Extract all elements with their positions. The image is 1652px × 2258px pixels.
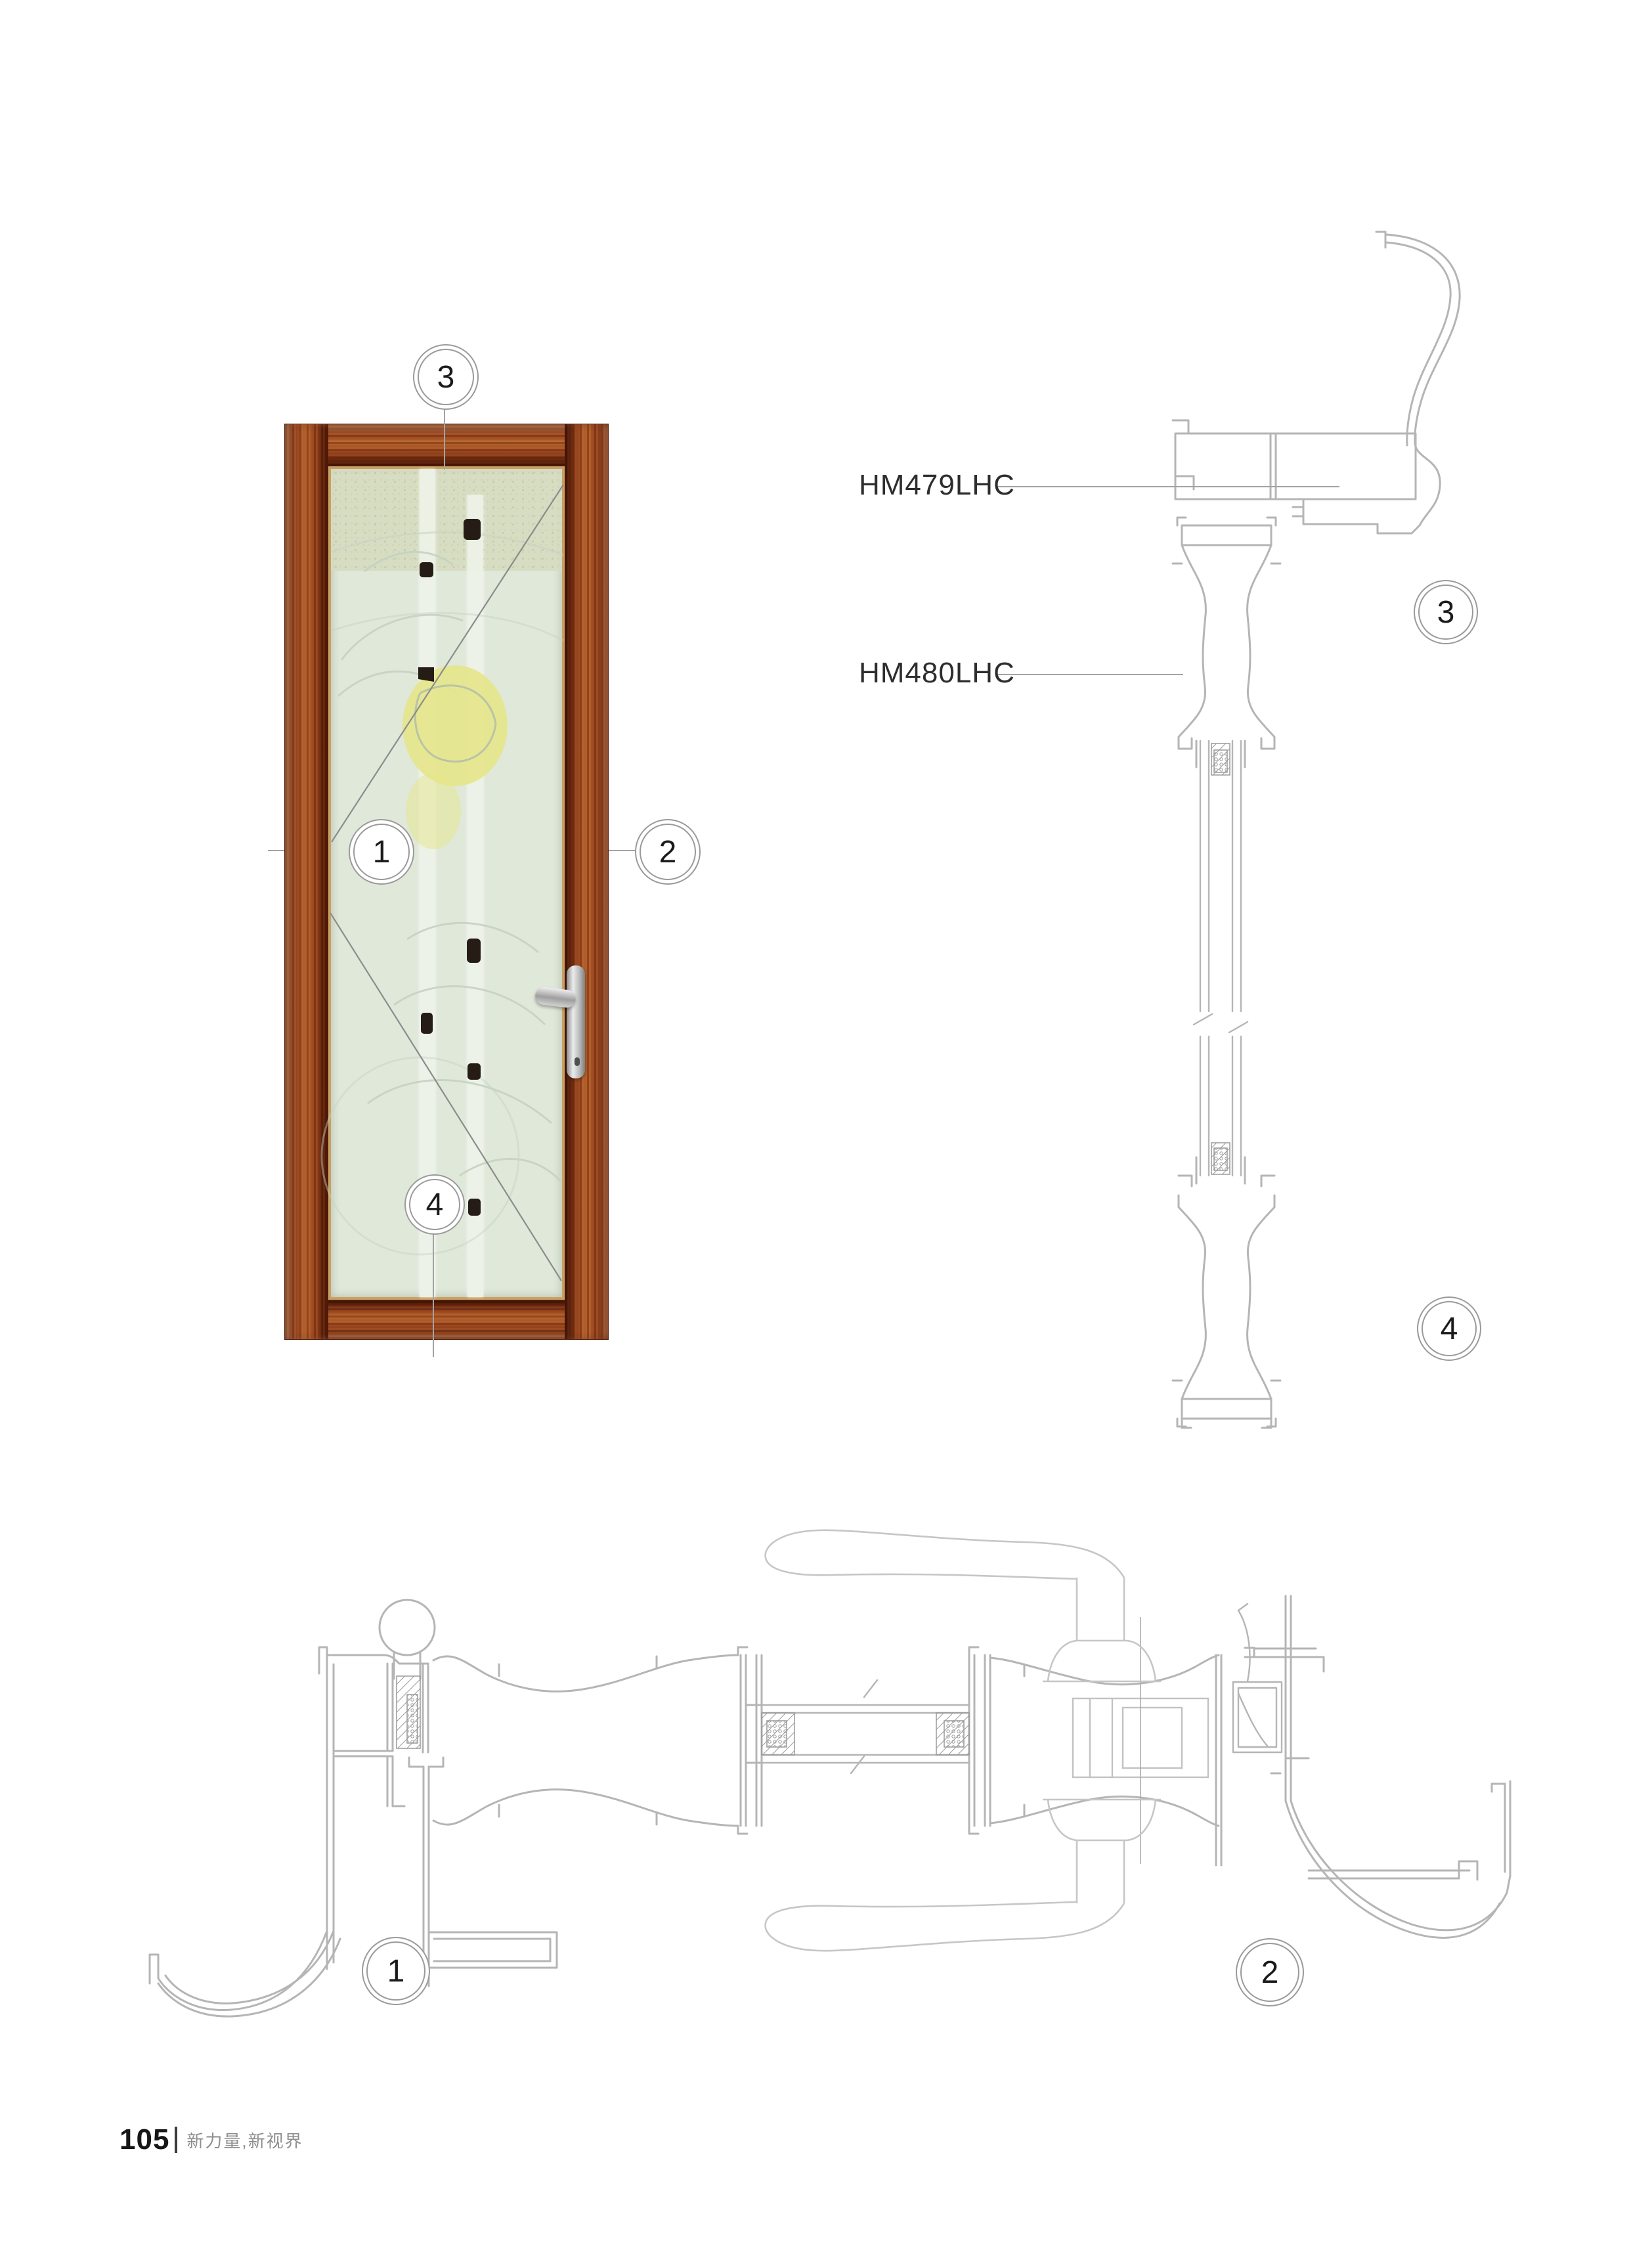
callout-door-left: 1 [349,819,414,885]
page-number: 105 [120,2123,169,2156]
footer-slogan: 新力量,新视界 [186,2128,303,2152]
callout-door-bottom: 4 [404,1174,465,1235]
callout-door-top: 3 [413,344,479,410]
callout-number: 1 [387,1956,405,1987]
callout-number: 2 [659,837,677,868]
callout-section-v-top: 3 [1414,580,1478,644]
door-keyhole [575,1057,580,1066]
callout-door-right: 2 [635,819,701,885]
callout-section-v-bottom: 4 [1417,1296,1481,1361]
callout-section-h-left: 1 [362,1937,430,2005]
label-door-stile-profile: HM480LHC [859,657,1015,690]
lock-body [1073,1617,1208,1864]
callout-number: 3 [1437,597,1455,629]
callout-number: 1 [373,837,391,868]
page-footer: 105 新力量,新视界 [120,2123,303,2157]
callout-number: 3 [437,362,455,393]
callout-number: 2 [1261,1957,1279,1989]
glass-yellow-accent [402,665,508,786]
callout-number: 4 [1441,1314,1458,1345]
hinge-barrel [380,1600,435,1655]
catalog-page: { "page": { "width": 2516, "height": 343… [0,0,1652,2258]
leader-line-callout4-door [433,1231,434,1357]
callout-number: 4 [426,1189,444,1221]
leader-line-hm480 [998,674,1183,675]
glass-black-squares [418,519,481,1216]
label-top-frame-profile: HM479LHC [859,469,1015,502]
architrave-top-hook [1376,232,1385,248]
footer-divider [175,2127,177,2153]
leader-line-hm479 [995,486,1339,487]
vertical-section-drawing [1149,223,1530,1491]
horizontal-section-drawing [144,1497,1530,2062]
callout-section-h-right: 2 [1236,1938,1304,2006]
leader-line-callout3-door [444,407,445,470]
